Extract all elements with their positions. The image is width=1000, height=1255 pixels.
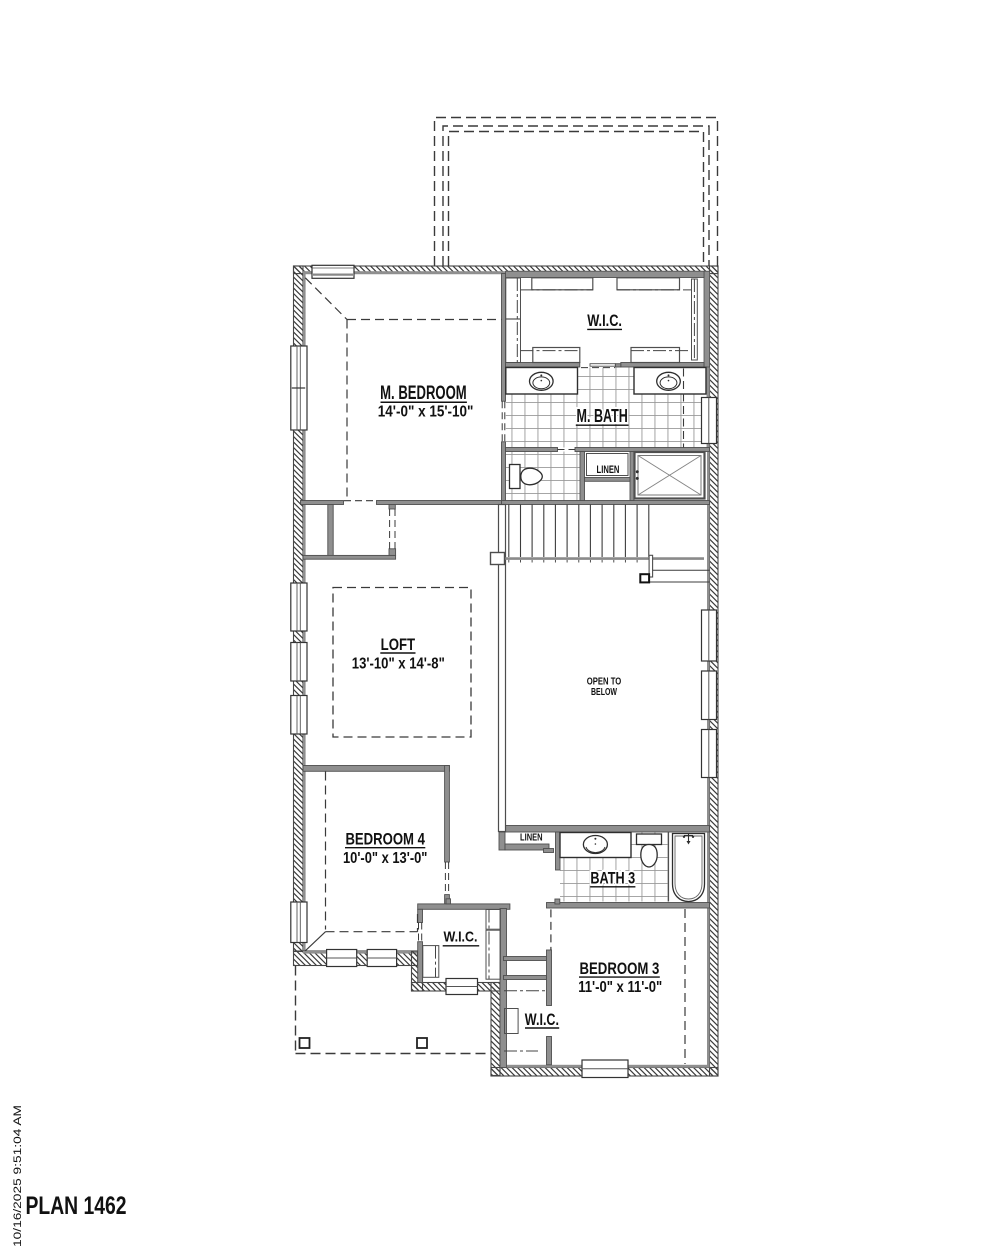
svg-text:LINEN: LINEN — [597, 464, 620, 476]
svg-text:BELOW: BELOW — [591, 686, 617, 698]
svg-text:10'-0" x 13'-0": 10'-0" x 13'-0" — [343, 850, 428, 867]
svg-text:11'-0" x 11'-0": 11'-0" x 11'-0" — [578, 979, 662, 996]
svg-text:W.I.C.: W.I.C. — [587, 311, 622, 330]
svg-text:PLAN 1462: PLAN 1462 — [26, 1192, 127, 1220]
svg-text:BATH 3: BATH 3 — [590, 869, 635, 887]
svg-text:BEDROOM 3: BEDROOM 3 — [580, 959, 660, 978]
svg-text:14'-0" x 15'-10": 14'-0" x 15'-10" — [378, 403, 474, 420]
svg-text:10/16/2025 9:51:04 AM: 10/16/2025 9:51:04 AM — [12, 1105, 24, 1247]
svg-text:BEDROOM 4: BEDROOM 4 — [345, 830, 425, 849]
svg-text:W.I.C.: W.I.C. — [444, 929, 478, 946]
svg-text:13'-10" x 14'-8": 13'-10" x 14'-8" — [352, 656, 445, 673]
svg-text:LINEN: LINEN — [520, 833, 543, 844]
svg-text:M. BATH: M. BATH — [577, 406, 628, 426]
svg-text:W.I.C.: W.I.C. — [525, 1010, 559, 1029]
svg-text:M. BEDROOM: M. BEDROOM — [380, 383, 467, 404]
svg-text:LOFT: LOFT — [381, 635, 416, 654]
